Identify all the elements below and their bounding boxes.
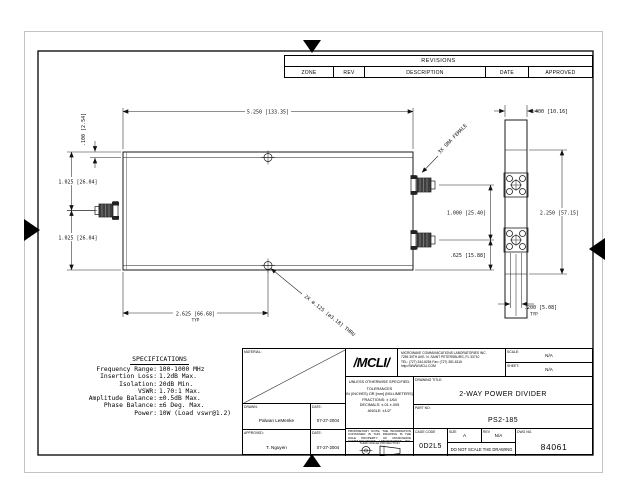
revisions-col-rev: REV: [333, 67, 364, 78]
revisions-title: REVISIONS: [285, 56, 592, 67]
size-label: SIZE: [449, 430, 457, 434]
dim-end-width: .400 [10.16]: [532, 109, 568, 115]
spec-row-power: Power: 10W (Load vswr@1.2): [62, 410, 257, 417]
dim-hole-pitch-typ: TYP: [530, 312, 538, 318]
cage-code-cell: CAGE CODE 0D2L5: [414, 429, 448, 456]
sheet-cell: SHEET: N/A: [506, 363, 592, 377]
sma-connector-right-lower: [411, 231, 436, 250]
approved-label: APPROVED:: [244, 431, 264, 435]
size-cell: SIZE A: [448, 429, 482, 443]
mount-hole-callout: 2X ø.125 [ø3.18] THRU: [303, 294, 356, 338]
drawn-label: DRAWN:: [244, 405, 258, 409]
tolerance-line-1: UNLESS OTHERWISE SPECIFIED:: [346, 380, 413, 386]
spec-row-vswr: VSWR: 1.70:1 Max.: [62, 388, 257, 395]
sma-flange-lower: [504, 228, 528, 252]
company-info-cell: MICROWAVE COMMUNICATIONS LABORATORIES IN…: [398, 349, 506, 377]
cage-code-label: CAGE CODE: [415, 430, 435, 434]
revisions-table: REVISIONS ZONE REV DESCRIPTION DATE APPR…: [284, 55, 593, 78]
do-not-scale-note: DO NOT SCALE THE DRAWING: [448, 443, 515, 456]
part-no: PS2-185: [414, 405, 592, 429]
part-no-cell: PART NO: PS2-185: [414, 405, 592, 429]
spec-row-frequency: Frequency Range: 100-1000 MHz: [62, 366, 257, 373]
front-view-outline: [123, 152, 413, 270]
front-view: [123, 151, 413, 273]
drawn-date-cell: DATE: 07-27-2004: [311, 404, 346, 430]
drawing-title-cell: DRAWING TITLE: 2-WAY POWER DIVIDER: [414, 377, 592, 405]
approved-cell: APPROVED: T. Nguyen: [243, 430, 311, 456]
drawn-date-label: DATE:: [312, 405, 322, 409]
right-center-arrow-icon: [589, 238, 605, 260]
dim-width-top: 5.250 [133.35]: [247, 110, 289, 116]
proprietary-note: PROPRIETARY NOTE: THE INFORMATION CONTAI…: [348, 429, 411, 442]
drawing-sheet: 5.250 [133.35] .100 [2.54] 1.025 [26.04]…: [0, 0, 625, 482]
revisions-col-description: DESCRIPTION: [364, 67, 485, 78]
tolerance-line-6: ANGLE: ±1/2°: [346, 409, 413, 415]
proprietary-note-cell: PROPRIETARY NOTE: THE INFORMATION CONTAI…: [346, 429, 414, 442]
dimension-labels: 5.250 [133.35] .100 [2.54] 1.025 [26.04]…: [56, 108, 582, 338]
revisions-col-zone: ZONE: [285, 67, 333, 78]
title-block: MATERIAL: DRAWN: Palwan LeMenke DATE: 07…: [242, 348, 593, 455]
dim-mount-spacing-typ: TYP: [192, 318, 200, 324]
scale-cell: SCALE: N/A: [506, 349, 592, 363]
sma-flange-upper: [504, 173, 528, 197]
spec-row-insertion-loss: Insertion Loss: 1.2dB Max.: [62, 373, 257, 380]
dim-offset-top: .100 [2.54]: [81, 113, 87, 146]
mount-hole-top: [261, 151, 275, 165]
projection-cell: THIRD ANGLE PROJECTION: [346, 442, 414, 456]
do-not-scale-cell: DO NOT SCALE THE DRAWING: [448, 443, 516, 456]
spec-row-amplitude-balance: Amplitude Balance: ±0.5dB Max.: [62, 395, 257, 402]
spec-row-isolation: Isolation: 20dB Min.: [62, 381, 257, 388]
rev-label: REV: [483, 430, 490, 434]
dim-height-lower: 1.025 [26.04]: [58, 236, 97, 242]
sheet-label: SHEET:: [507, 364, 519, 368]
part-no-label: PART NO:: [415, 406, 431, 410]
dimensions: [67, 105, 567, 317]
specifications-title: SPECIFICATIONS: [62, 355, 257, 363]
dim-end-height: 2.250 [57.15]: [540, 211, 579, 217]
dim-port-spacing: 1.000 [25.40]: [447, 211, 486, 217]
revisions-col-date: DATE: [485, 67, 528, 78]
dim-port-offset: .625 [15.88]: [450, 253, 486, 259]
drawn-cell: DRAWN: Palwan LeMenke: [243, 404, 311, 430]
dim-hole-pitch: .200 [5.08]: [524, 305, 557, 311]
drawing-title-label: DRAWING TITLE:: [415, 378, 442, 382]
projection-circle-icon: [359, 445, 373, 456]
scale-label: SCALE:: [507, 350, 519, 354]
dim-height-upper: 1.025 [26.04]: [58, 180, 97, 186]
spec-row-phase-balance: Phase Balance: ±6 Deg. Max.: [62, 402, 257, 409]
dim-mount-spacing: 2.625 [66.68]: [176, 311, 215, 317]
tolerance-line-3: IN (INCHES) OR [mm] (MILLIMETERS): [346, 392, 413, 398]
sma-connector-right-upper: [411, 176, 436, 195]
approved-date-label: DATE:: [312, 431, 322, 435]
company-website: http://WWW.MCLI.COM: [401, 364, 505, 368]
end-view: [504, 120, 528, 318]
tolerance-cell: UNLESS OTHERWISE SPECIFIED: TOLERANCES I…: [346, 377, 414, 429]
projection-cone-icon: [379, 445, 401, 456]
revisions-col-approved: APPROVED: [528, 67, 592, 78]
dwg-no-cell: DWG NO. 84061: [516, 429, 592, 456]
specifications-block: SPECIFICATIONS Frequency Range: 100-1000…: [62, 355, 257, 417]
connector-callout: 3X SMA FEMALE: [437, 123, 469, 155]
material-cell: MATERIAL:: [243, 349, 346, 404]
company-logo-cell: /MCLI/: [346, 349, 398, 377]
approved-date-cell: DATE: 07-27-2004: [311, 430, 346, 456]
dwg-no-label: DWG NO.: [517, 430, 532, 434]
rev-cell: REV N/A: [482, 429, 516, 443]
mcli-logo: /MCLI/: [346, 349, 397, 376]
